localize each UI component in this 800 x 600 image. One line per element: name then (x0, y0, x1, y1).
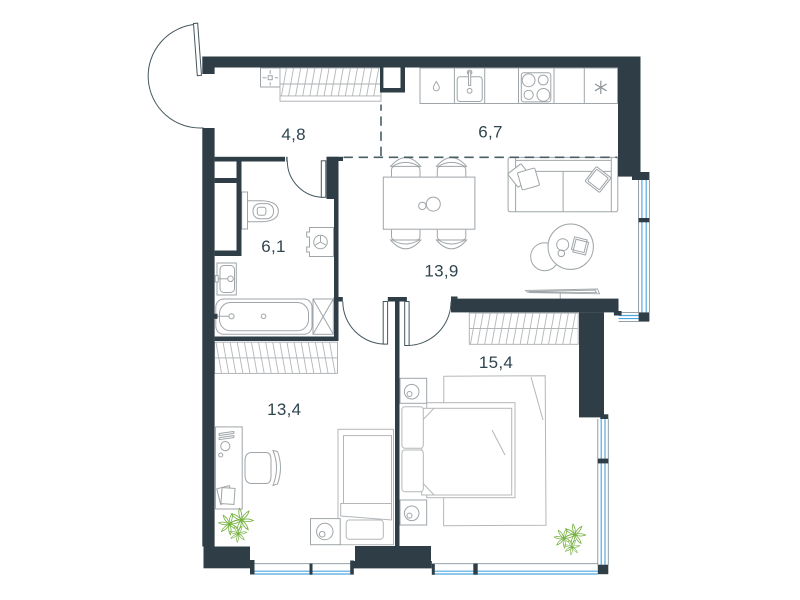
svg-text:13,4: 13,4 (267, 400, 301, 419)
svg-text:13,9: 13,9 (424, 262, 458, 281)
svg-text:6,1: 6,1 (261, 237, 286, 256)
svg-text:4,8: 4,8 (281, 125, 306, 144)
svg-text:6,7: 6,7 (478, 123, 503, 142)
svg-text:15,4: 15,4 (479, 353, 513, 372)
